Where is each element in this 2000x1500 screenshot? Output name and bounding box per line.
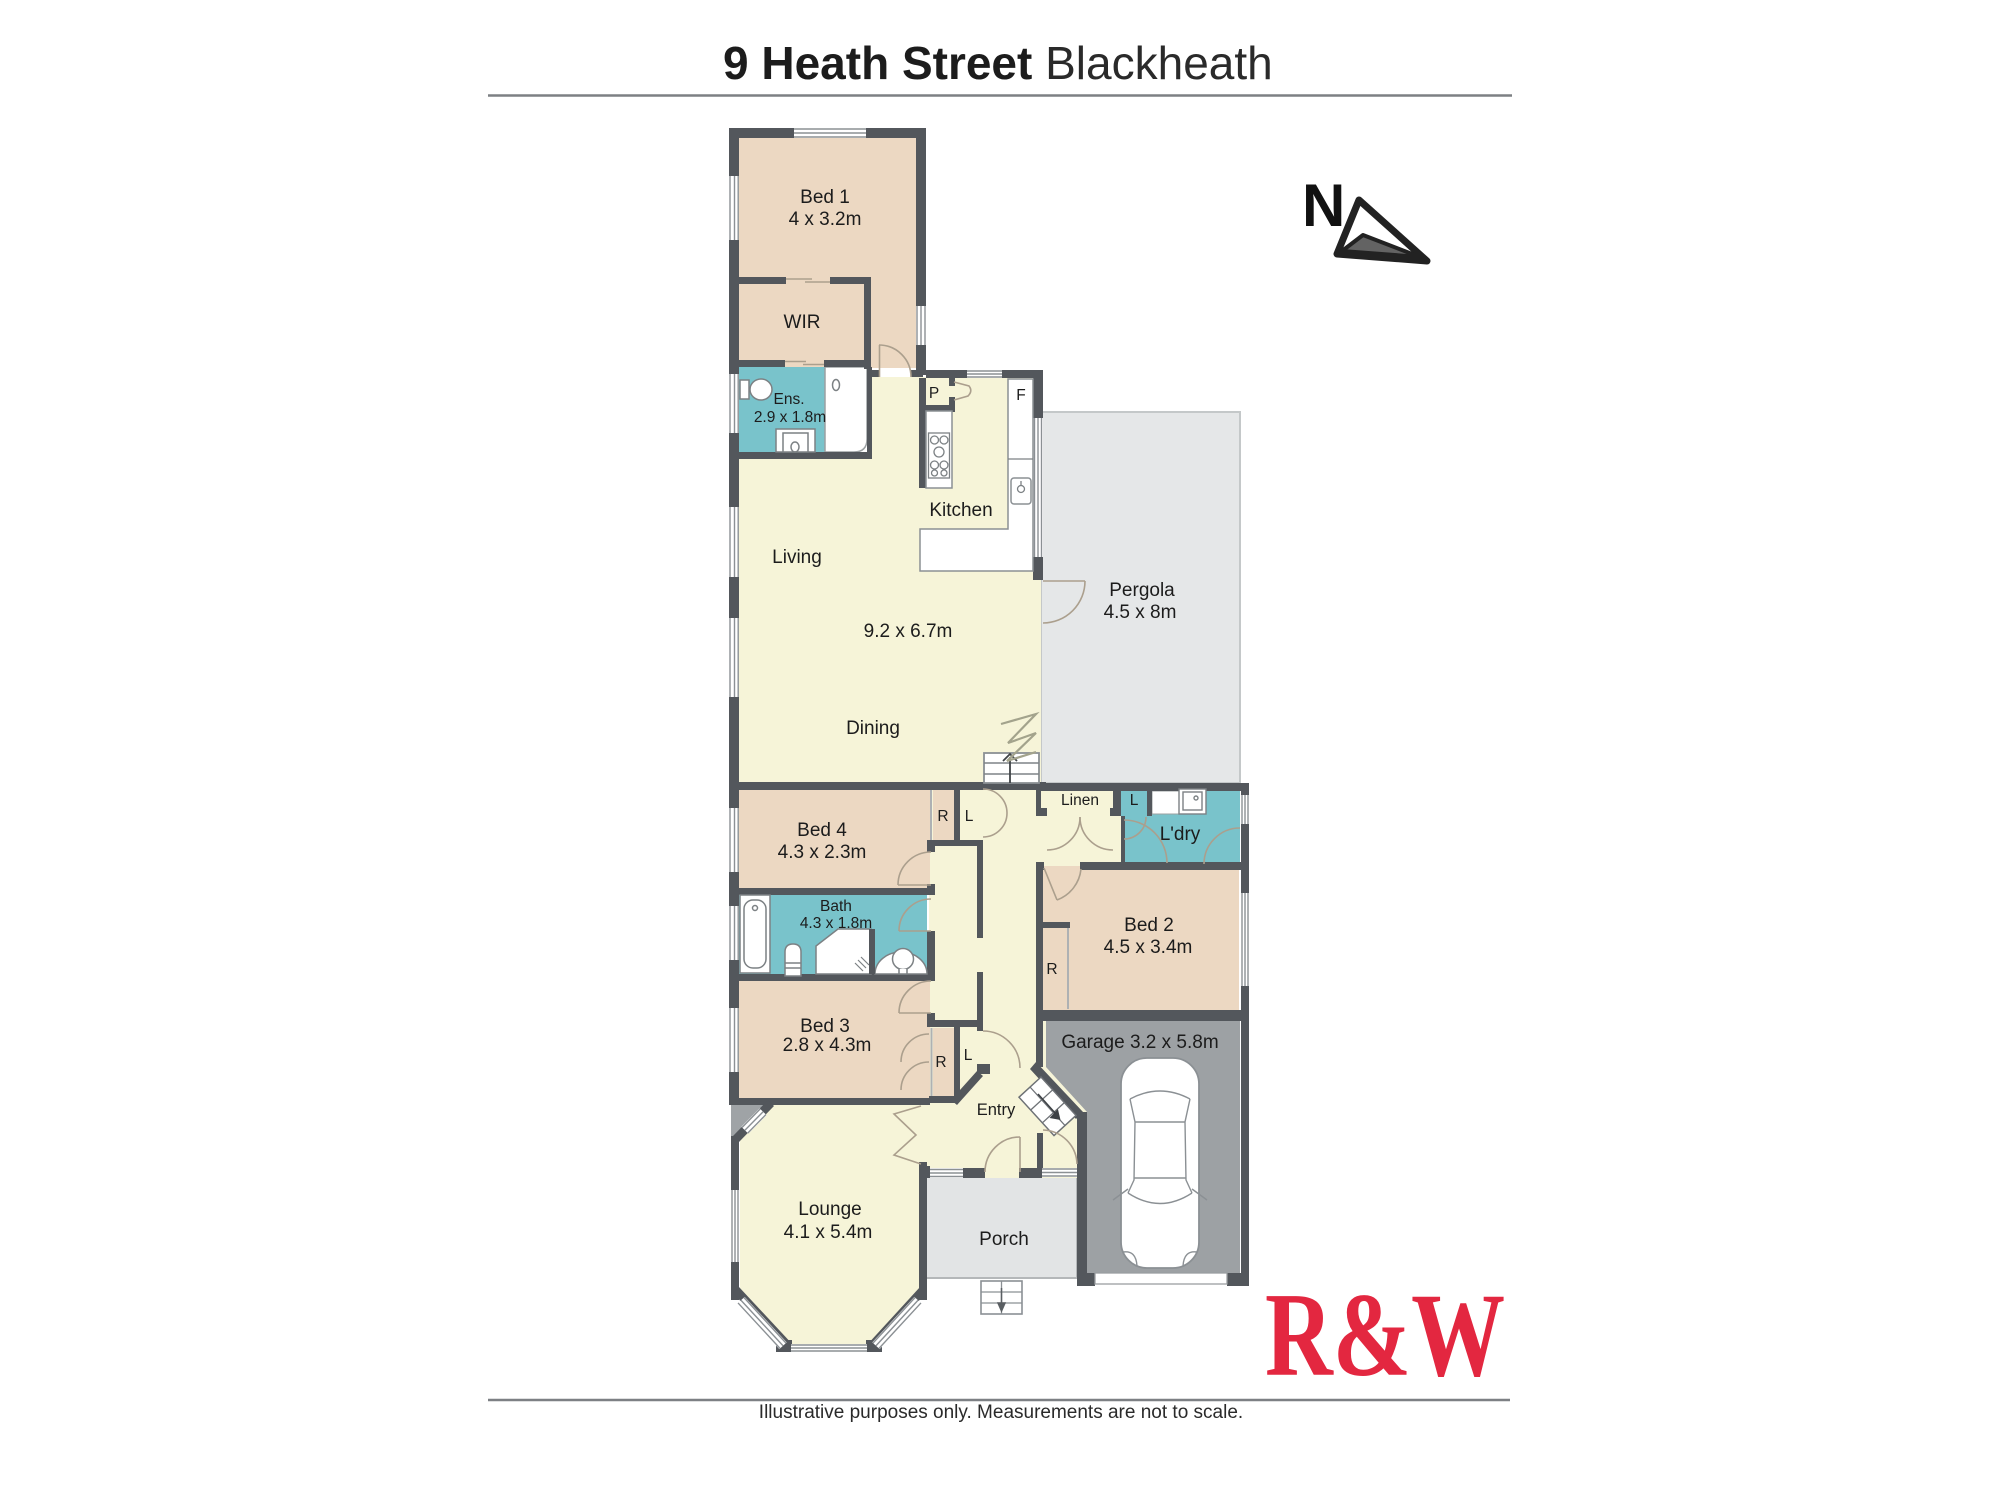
svg-text:R: R bbox=[1046, 961, 1057, 978]
svg-text:4.3 x 1.8m: 4.3 x 1.8m bbox=[800, 915, 872, 932]
svg-text:L: L bbox=[1130, 792, 1139, 809]
svg-text:9.2 x 6.7m: 9.2 x 6.7m bbox=[864, 621, 953, 642]
svg-text:Pergola: Pergola bbox=[1109, 580, 1175, 601]
svg-text:9 Heath Street Blackheath: 9 Heath Street Blackheath bbox=[723, 37, 1273, 89]
svg-text:Bath: Bath bbox=[820, 898, 852, 915]
svg-text:4.3 x 2.3m: 4.3 x 2.3m bbox=[778, 842, 867, 863]
svg-text:N: N bbox=[1302, 172, 1345, 239]
svg-text:Garage 3.2 x 5.8m: Garage 3.2 x 5.8m bbox=[1061, 1032, 1218, 1053]
svg-text:Porch: Porch bbox=[979, 1229, 1029, 1250]
svg-text:4.1 x 5.4m: 4.1 x 5.4m bbox=[784, 1222, 873, 1243]
svg-text:4.5 x 3.4m: 4.5 x 3.4m bbox=[1104, 937, 1193, 958]
svg-text:P: P bbox=[929, 385, 939, 402]
svg-text:Illustrative purposes only. Me: Illustrative purposes only. Measurements… bbox=[759, 1402, 1243, 1423]
svg-text:Lounge: Lounge bbox=[798, 1199, 861, 1220]
svg-text:Ens.: Ens. bbox=[773, 391, 804, 408]
svg-text:Bed 2: Bed 2 bbox=[1124, 915, 1174, 936]
svg-text:4.5 x 8m: 4.5 x 8m bbox=[1104, 602, 1177, 623]
svg-text:R&W: R&W bbox=[1265, 1268, 1505, 1401]
svg-text:Living: Living bbox=[772, 547, 822, 568]
svg-text:R: R bbox=[935, 1054, 946, 1071]
svg-text:Entry: Entry bbox=[977, 1101, 1016, 1119]
svg-text:Bed 1: Bed 1 bbox=[800, 187, 850, 208]
svg-text:Kitchen: Kitchen bbox=[929, 500, 992, 521]
svg-text:L: L bbox=[964, 1047, 973, 1064]
svg-text:Dining: Dining bbox=[846, 718, 900, 739]
svg-text:L'dry: L'dry bbox=[1160, 824, 1201, 845]
svg-text:F: F bbox=[1016, 387, 1025, 404]
svg-text:4 x 3.2m: 4 x 3.2m bbox=[789, 209, 862, 230]
svg-text:WIR: WIR bbox=[784, 312, 821, 333]
svg-text:2.8 x 4.3m: 2.8 x 4.3m bbox=[783, 1035, 872, 1056]
svg-text:Bed 4: Bed 4 bbox=[797, 820, 847, 841]
svg-text:L: L bbox=[965, 808, 974, 825]
svg-text:Bed 3: Bed 3 bbox=[800, 1016, 850, 1037]
svg-text:R: R bbox=[937, 808, 948, 825]
svg-text:Linen: Linen bbox=[1061, 792, 1099, 809]
svg-text:2.9 x 1.8m: 2.9 x 1.8m bbox=[754, 409, 826, 426]
